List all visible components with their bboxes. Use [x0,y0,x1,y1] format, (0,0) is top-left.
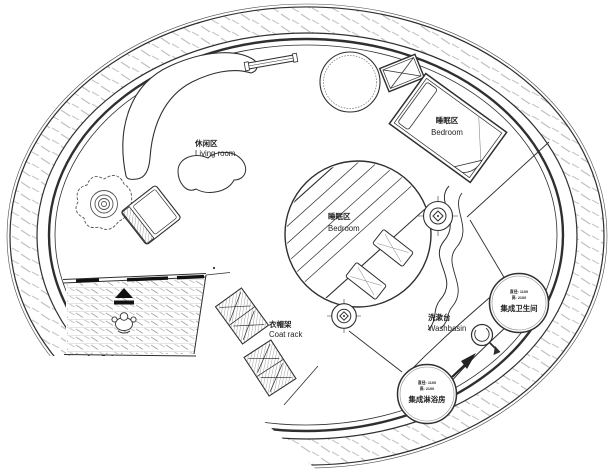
bedroom-round-label-en: Bedroom [328,224,360,233]
living-room-label-en: Living room [195,149,235,158]
floor-plan-page: 休闲区 Living room 睡眠区 Bedroom [0,0,611,473]
bedroom-main-label-en: Bedroom [431,128,463,137]
bedroom-main-label-zh: 睡眠区 [436,115,459,125]
door-track-segment [127,278,168,280]
coat-rack-label-zh: 衣帽架 [269,319,292,329]
washbasin-label-zh: 洗漱台 [428,312,451,322]
terrace-deck-hatch [67,278,206,354]
shower-pod-dim-height: 高: 2100 [420,386,435,391]
toilet-pod-dim-height: 高: 2100 [512,295,527,300]
toilet-pod-dim-diameter: 直径: 1100 [510,289,528,294]
toilet-pod: 直径: 1100 高: 2100 集成卫生间 [490,274,549,333]
door-track-segment [76,280,99,281]
shower-pod-label: 集成淋浴房 [408,395,446,404]
floor-plan-svg: 休闲区 Living room 睡眠区 Bedroom [0,0,611,473]
shower-pod: 直径: 1100 高: 2100 集成淋浴房 [398,365,457,424]
coat-rack-label-en: Coat rack [269,330,302,339]
washbasin-label-en: Washbasin [428,324,466,333]
round-table [320,52,380,112]
shower-pod-dim-diameter: 直径: 1100 [418,380,436,385]
bedroom-round-label-zh: 睡眠区 [328,211,351,221]
toilet-pod-label: 集成卫生间 [500,304,538,313]
door-track-segment [177,277,204,278]
living-room-label-zh: 休闲区 [194,138,218,148]
plan-dot [213,267,215,269]
